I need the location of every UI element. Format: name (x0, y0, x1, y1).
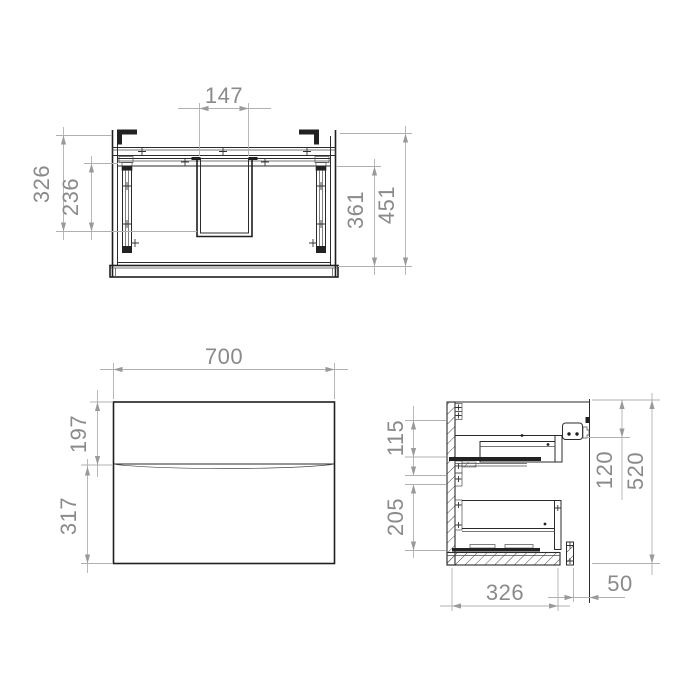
handle-recess-curve (116, 465, 332, 469)
lower-drawer-section (452, 501, 561, 552)
dim-label-700: 700 (205, 344, 243, 369)
slide-reference-ticks (405, 462, 446, 485)
drawer-slide-rails (122, 166, 326, 253)
dimension-upper-left: 115 (383, 406, 446, 462)
dimension-bottom-depth: 326 (440, 568, 570, 611)
dim-label-205: 205 (383, 498, 408, 536)
front-panel-fixing-blocks (455, 404, 462, 531)
wall-fixing-mark (586, 417, 590, 423)
dim-label-361: 361 (343, 191, 368, 229)
hanging-bracket (563, 423, 590, 440)
dim-label-147: 147 (205, 83, 243, 108)
upper-drawer-section (449, 434, 562, 467)
technical-drawing-canvas: 147 326 236 361 (0, 0, 700, 700)
dimension-top-drawer: 197 (66, 390, 113, 477)
front-panel-section (447, 402, 455, 565)
top-rails (113, 148, 336, 167)
dimension-left-inner: 236 (58, 156, 118, 240)
dim-label-451: 451 (374, 186, 399, 224)
bottom-panel (110, 263, 338, 278)
wall-mount-brackets (117, 130, 319, 145)
siphon-recess (192, 159, 258, 237)
dim-label-317: 317 (56, 497, 81, 535)
cabinet-front-outline (114, 402, 335, 564)
dimension-overall-width: 700 (100, 344, 348, 399)
dim-label-236: 236 (58, 178, 83, 216)
dim-label-120: 120 (592, 451, 617, 489)
dim-label-326-side: 326 (486, 580, 524, 605)
dim-label-520: 520 (623, 452, 648, 490)
dimension-lower-left: 205 (383, 485, 446, 559)
bottom-panel-section (447, 553, 560, 566)
front-view: 700 197 317 (56, 344, 348, 573)
dim-label-50: 50 (607, 571, 632, 596)
dimension-cutout-width: 147 (178, 83, 271, 156)
dim-label-197: 197 (66, 415, 91, 453)
side-section-view: 115 205 120 (383, 393, 660, 611)
rear-section-view: 147 326 236 361 (29, 83, 412, 277)
cabinet-side-walls (113, 130, 336, 277)
dim-label-115: 115 (383, 420, 408, 457)
rear-foot-spacer (567, 542, 574, 565)
dim-label-326-rear: 326 (29, 165, 54, 203)
dimension-wall-clearance: 50 (548, 568, 633, 602)
screw-cross-marks (123, 148, 325, 248)
dimension-bottom-drawer: 317 (56, 459, 113, 573)
